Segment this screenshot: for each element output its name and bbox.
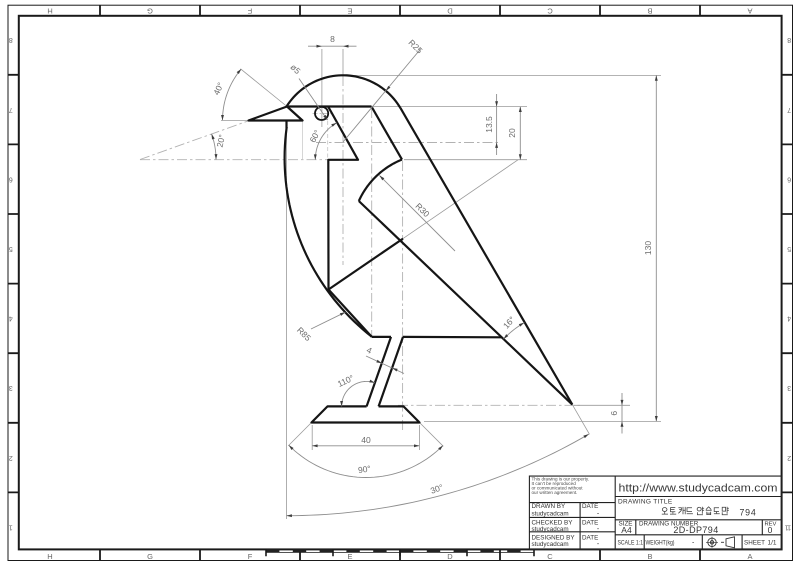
- svg-text:D: D: [447, 552, 453, 561]
- svg-text:DATE: DATE: [582, 503, 598, 510]
- svg-text:13.5: 13.5: [484, 116, 494, 133]
- svg-text:6: 6: [787, 175, 791, 182]
- svg-text:DRAWING TITLE: DRAWING TITLE: [618, 499, 673, 506]
- svg-text:A4: A4: [621, 525, 632, 535]
- svg-text:4: 4: [787, 315, 791, 322]
- svg-text:8: 8: [330, 34, 335, 44]
- svg-text:2D-DP794: 2D-DP794: [673, 525, 718, 535]
- svg-text:90°: 90°: [357, 463, 371, 475]
- svg-text:C: C: [547, 552, 553, 561]
- svg-text:8: 8: [9, 36, 13, 43]
- svg-text:H: H: [47, 552, 52, 561]
- svg-text:3: 3: [787, 384, 791, 391]
- svg-text:G: G: [147, 6, 153, 15]
- svg-text:C: C: [547, 6, 553, 15]
- svg-text:http://www.studycadcam.com: http://www.studycadcam.com: [619, 483, 778, 495]
- svg-text:1: 1: [785, 523, 789, 530]
- svg-text:studycadcam: studycadcam: [532, 510, 569, 517]
- svg-text:130: 130: [643, 241, 653, 255]
- svg-text:3: 3: [9, 384, 13, 391]
- svg-text:5: 5: [9, 245, 13, 252]
- svg-text:SHEET: SHEET: [744, 540, 765, 547]
- svg-text:B: B: [647, 552, 652, 561]
- svg-text:794: 794: [739, 508, 756, 518]
- svg-text:20: 20: [507, 128, 517, 138]
- svg-text:G: G: [147, 552, 153, 561]
- svg-text:DRAWN BY: DRAWN BY: [532, 503, 567, 510]
- svg-text:6: 6: [609, 411, 619, 416]
- svg-text:studycadcam: studycadcam: [532, 541, 569, 548]
- svg-text:7: 7: [787, 106, 791, 113]
- svg-text:E: E: [347, 552, 352, 561]
- svg-text:1/1: 1/1: [768, 540, 777, 547]
- svg-text:F: F: [247, 6, 252, 15]
- svg-text:4: 4: [9, 315, 13, 322]
- svg-text:6: 6: [9, 175, 13, 182]
- svg-text:F: F: [248, 552, 253, 561]
- svg-text:40: 40: [361, 435, 371, 445]
- svg-text:H: H: [47, 6, 52, 15]
- svg-text:WEIGHT(kg): WEIGHT(kg): [646, 540, 675, 547]
- svg-text:SCALE 1:1: SCALE 1:1: [618, 540, 644, 547]
- svg-text:A: A: [747, 6, 752, 15]
- svg-text:0: 0: [768, 525, 773, 535]
- svg-text:1: 1: [9, 523, 13, 530]
- svg-text:2: 2: [787, 454, 791, 461]
- svg-text:2: 2: [9, 454, 13, 461]
- svg-text:E: E: [347, 6, 352, 15]
- svg-text:D: D: [447, 6, 453, 15]
- svg-text:our written agreement.: our written agreement.: [532, 490, 578, 495]
- svg-text:studycadcam: studycadcam: [532, 526, 569, 533]
- svg-text:5: 5: [787, 245, 791, 252]
- svg-text:A: A: [747, 552, 752, 561]
- svg-text:7: 7: [9, 106, 13, 113]
- svg-text:B: B: [647, 6, 652, 15]
- svg-text:8: 8: [787, 36, 791, 43]
